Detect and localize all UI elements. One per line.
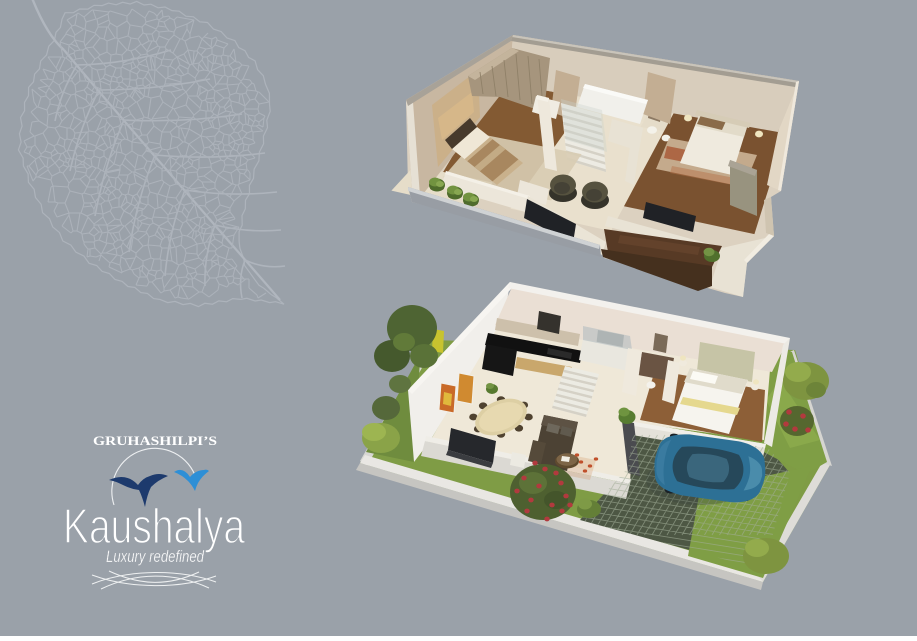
svg-text:Kaushalya: Kaushalya [63,500,246,554]
svg-text:GRUHASHILPI’S: GRUHASHILPI’S [93,434,217,448]
svg-text:Luxury redefined: Luxury redefined [106,548,205,566]
